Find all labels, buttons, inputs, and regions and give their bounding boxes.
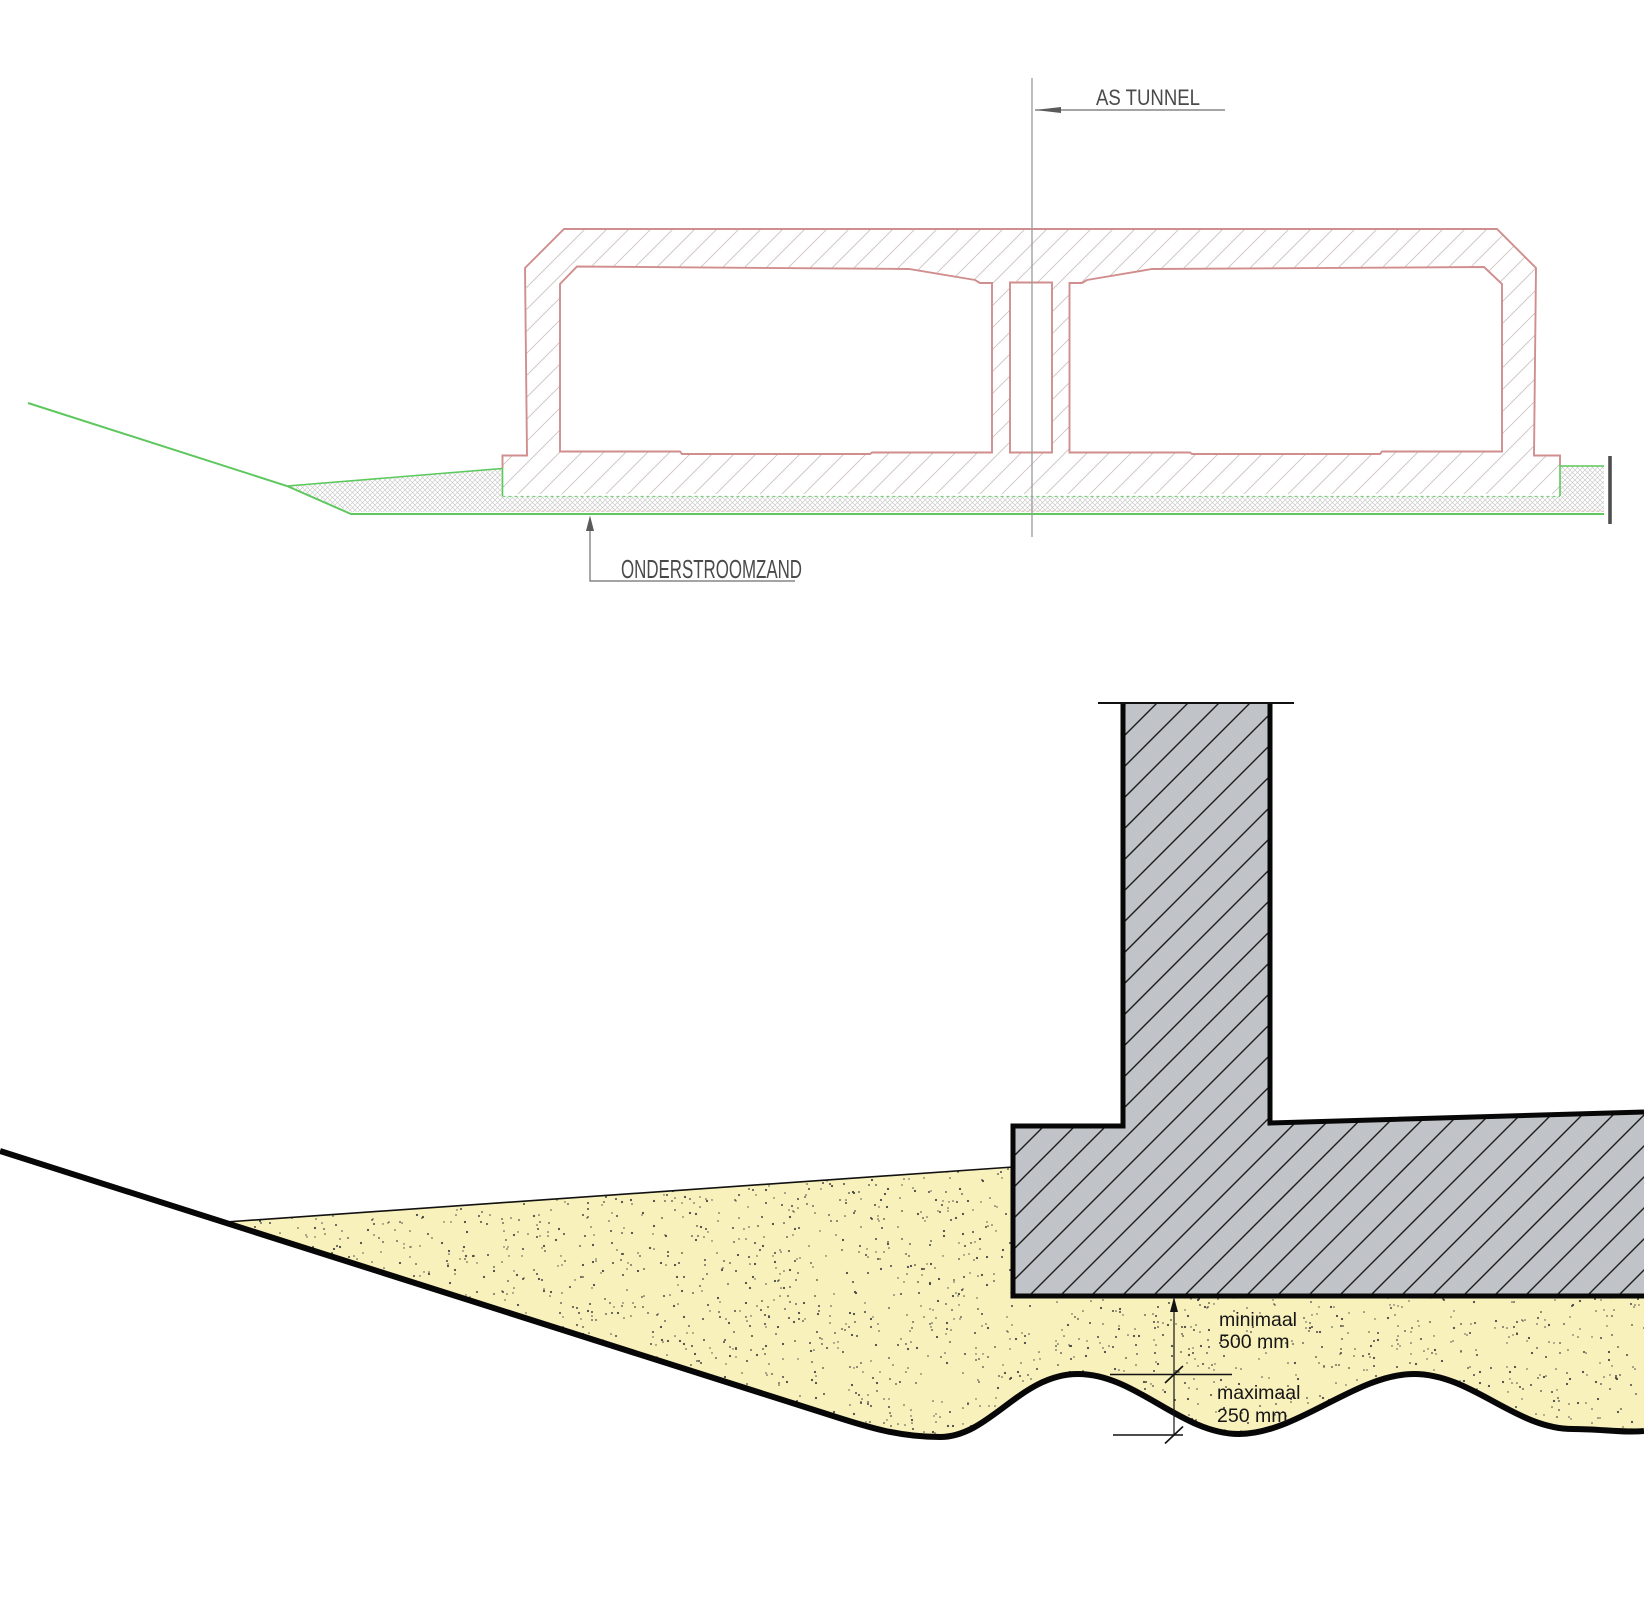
- svg-text:AS TUNNEL: AS TUNNEL: [1096, 85, 1200, 110]
- svg-text:250 mm: 250 mm: [1217, 1405, 1287, 1427]
- svg-text:minimaal: minimaal: [1219, 1309, 1297, 1331]
- svg-text:ONDERSTROOMZAND: ONDERSTROOMZAND: [621, 554, 802, 584]
- svg-text:maximaal: maximaal: [1217, 1382, 1300, 1404]
- svg-text:500 mm: 500 mm: [1219, 1331, 1289, 1353]
